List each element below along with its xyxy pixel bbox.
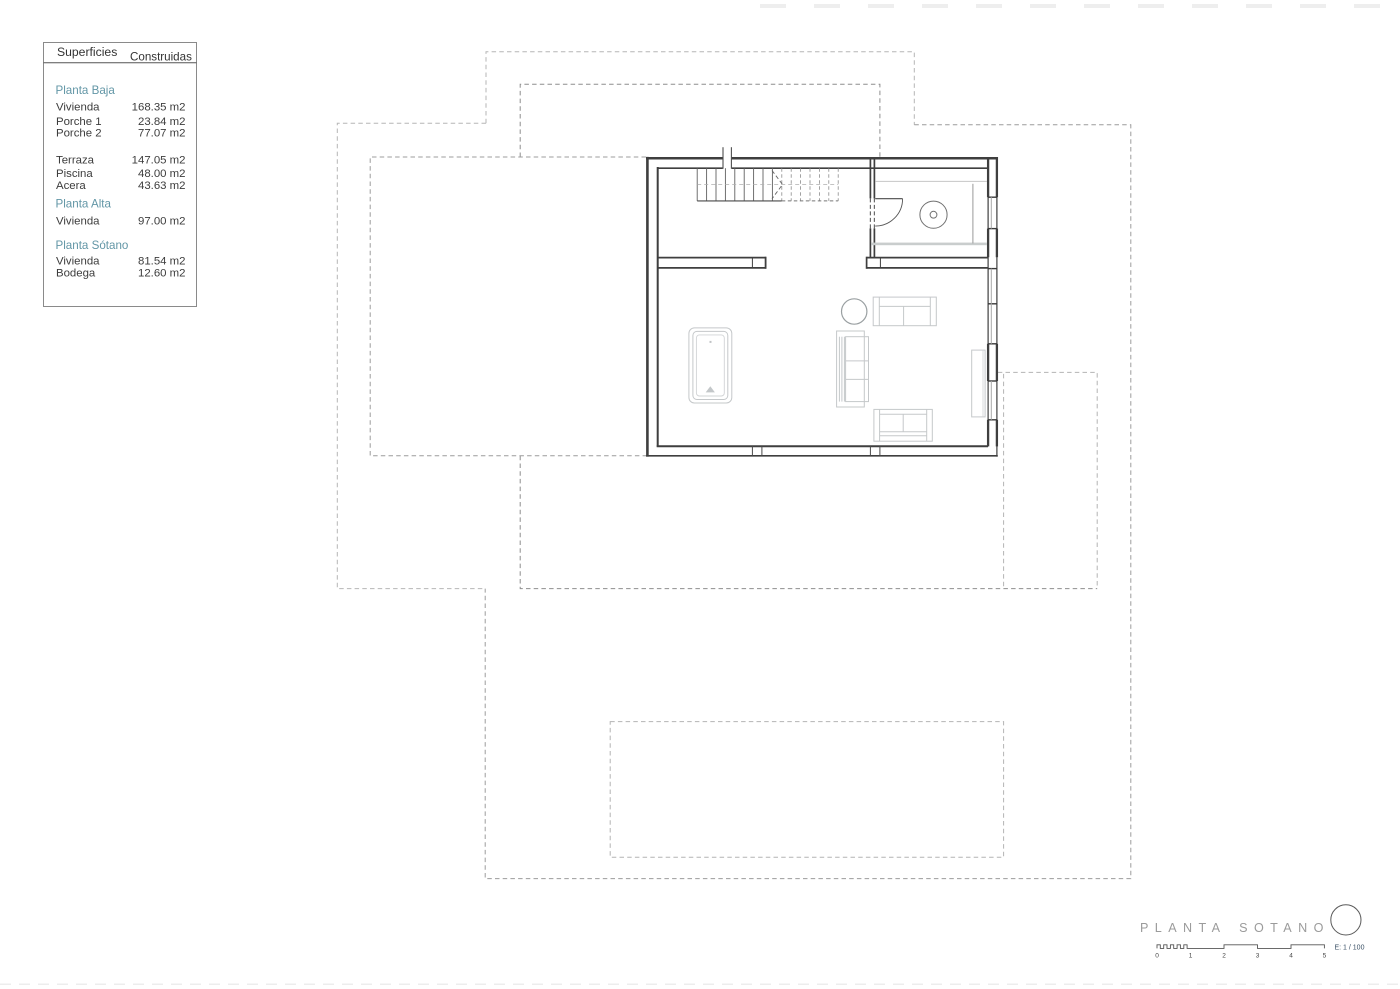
svg-text:Porche 1: Porche 1 [56, 116, 102, 128]
svg-text:Vivienda: Vivienda [56, 216, 100, 228]
svg-text:168.35 m2: 168.35 m2 [132, 102, 186, 114]
svg-text:3: 3 [1256, 953, 1260, 960]
svg-text:Terraza: Terraza [56, 155, 95, 167]
svg-text:E: 1 / 100: E: 1 / 100 [1335, 945, 1365, 952]
svg-text:Construidas: Construidas [130, 51, 192, 64]
svg-text:43.63 m2: 43.63 m2 [138, 180, 186, 192]
svg-text:2: 2 [1222, 953, 1226, 960]
svg-text:0: 0 [1155, 953, 1159, 960]
svg-text:23.84 m2: 23.84 m2 [138, 116, 186, 128]
svg-text:Bodega: Bodega [56, 268, 96, 280]
svg-text:97.00 m2: 97.00 m2 [138, 216, 186, 228]
svg-text:Superficies: Superficies [57, 45, 117, 59]
svg-text:77.07 m2: 77.07 m2 [138, 128, 186, 140]
svg-text:Porche 2: Porche 2 [56, 128, 102, 140]
svg-text:Planta Baja: Planta Baja [56, 84, 116, 97]
svg-text:1: 1 [1189, 953, 1193, 960]
svg-text:PLANTA SOTANO: PLANTA SOTANO [1140, 921, 1330, 935]
svg-text:Planta Sótano: Planta Sótano [56, 239, 129, 252]
svg-text:4: 4 [1289, 953, 1293, 960]
svg-text:Vivienda: Vivienda [56, 256, 100, 268]
svg-text:81.54 m2: 81.54 m2 [138, 256, 186, 268]
svg-text:147.05 m2: 147.05 m2 [132, 155, 186, 167]
svg-text:Planta Alta: Planta Alta [56, 198, 112, 211]
svg-text:48.00 m2: 48.00 m2 [138, 168, 186, 180]
svg-text:Vivienda: Vivienda [56, 102, 100, 114]
svg-text:12.60 m2: 12.60 m2 [138, 268, 186, 280]
svg-text:5: 5 [1323, 953, 1327, 960]
svg-text:Piscina: Piscina [56, 168, 93, 180]
svg-text:Acera: Acera [56, 180, 86, 192]
